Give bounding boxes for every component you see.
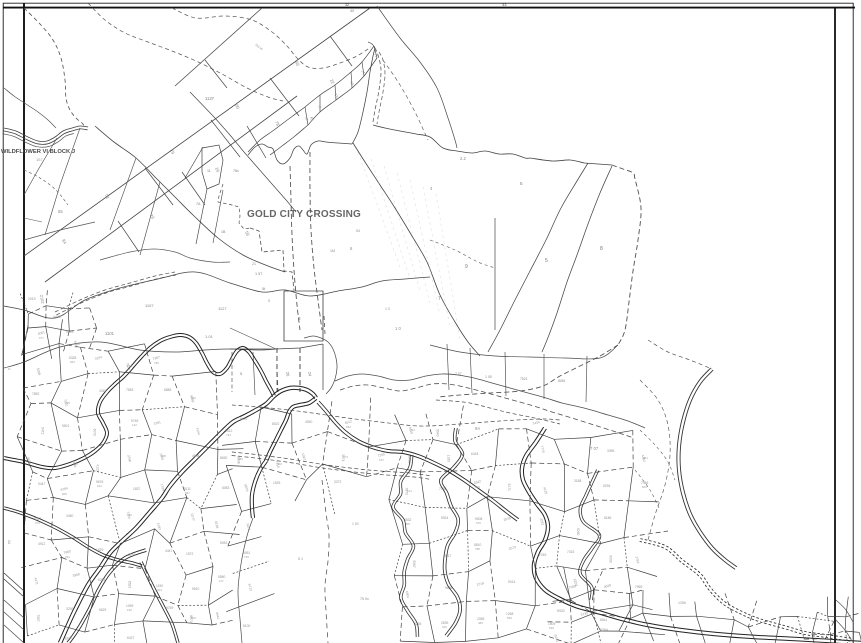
svg-text:21: 21 bbox=[252, 262, 256, 266]
svg-text:9447: 9447 bbox=[38, 482, 46, 486]
svg-text:2019: 2019 bbox=[28, 297, 36, 301]
svg-text:874: 874 bbox=[343, 455, 348, 459]
svg-text:1 05: 1 05 bbox=[485, 375, 492, 379]
svg-text:1107: 1107 bbox=[145, 303, 154, 308]
svg-text:7557: 7557 bbox=[36, 614, 40, 622]
svg-text:788: 788 bbox=[475, 547, 480, 551]
svg-text:54: 54 bbox=[356, 229, 360, 233]
svg-text:1 0: 1 0 bbox=[395, 326, 401, 331]
svg-text:9171: 9171 bbox=[507, 484, 511, 492]
svg-text:157: 157 bbox=[36, 157, 43, 162]
svg-text:8186: 8186 bbox=[604, 516, 612, 520]
svg-text:808: 808 bbox=[161, 454, 166, 458]
svg-text:652: 652 bbox=[346, 425, 351, 429]
svg-text:440: 440 bbox=[127, 513, 132, 517]
svg-text:7: 7 bbox=[438, 296, 441, 302]
svg-text:6293: 6293 bbox=[98, 578, 106, 582]
svg-text:1829: 1829 bbox=[96, 548, 104, 552]
svg-text:3355: 3355 bbox=[607, 449, 615, 453]
svg-text:5501: 5501 bbox=[62, 424, 70, 428]
svg-text:5 1: 5 1 bbox=[298, 557, 303, 561]
svg-text:5014: 5014 bbox=[508, 580, 516, 584]
svg-text:1M: 1M bbox=[330, 249, 335, 253]
svg-text:424: 424 bbox=[410, 428, 415, 432]
svg-text:612: 612 bbox=[97, 484, 102, 488]
svg-text:686: 686 bbox=[238, 457, 243, 461]
svg-text:1137: 1137 bbox=[205, 96, 215, 101]
svg-text:4508: 4508 bbox=[192, 454, 200, 458]
svg-text:3236: 3236 bbox=[66, 607, 74, 611]
svg-text:1256: 1256 bbox=[678, 601, 686, 605]
svg-text:796: 796 bbox=[154, 361, 159, 365]
svg-text:9769: 9769 bbox=[166, 606, 174, 610]
svg-text:8081: 8081 bbox=[558, 379, 566, 383]
svg-text:3450: 3450 bbox=[66, 514, 74, 518]
svg-text:6520: 6520 bbox=[127, 581, 131, 589]
svg-text:5364: 5364 bbox=[600, 628, 608, 632]
svg-text:2.2: 2.2 bbox=[460, 156, 466, 161]
svg-text:539: 539 bbox=[549, 626, 554, 630]
svg-text:7245: 7245 bbox=[539, 553, 547, 557]
svg-text:1572: 1572 bbox=[186, 552, 194, 556]
svg-text:900: 900 bbox=[191, 616, 196, 620]
svg-text:5764: 5764 bbox=[128, 553, 136, 557]
svg-text:970: 970 bbox=[476, 521, 481, 525]
svg-text:8100: 8100 bbox=[243, 624, 251, 628]
svg-text:5924: 5924 bbox=[441, 516, 449, 520]
svg-text:4310: 4310 bbox=[99, 389, 107, 393]
svg-text:5: 5 bbox=[268, 299, 270, 303]
svg-text:3272: 3272 bbox=[334, 480, 342, 484]
svg-text:4447: 4447 bbox=[165, 549, 173, 553]
svg-text:652: 652 bbox=[191, 396, 196, 400]
svg-text:8541: 8541 bbox=[600, 618, 608, 622]
svg-text:9099: 9099 bbox=[608, 555, 612, 563]
svg-text:360: 360 bbox=[277, 462, 282, 466]
svg-text:5932: 5932 bbox=[557, 609, 565, 613]
svg-text:8: 8 bbox=[600, 246, 603, 252]
svg-text:6418: 6418 bbox=[471, 452, 479, 456]
svg-text:9510: 9510 bbox=[192, 587, 200, 591]
svg-text:6427: 6427 bbox=[127, 636, 135, 640]
svg-text:602: 602 bbox=[642, 485, 647, 489]
svg-text:916: 916 bbox=[442, 625, 447, 629]
svg-text:7315: 7315 bbox=[567, 550, 575, 554]
svg-text:1: 1 bbox=[7, 368, 11, 370]
svg-text:4408: 4408 bbox=[53, 315, 61, 319]
svg-text:867: 867 bbox=[185, 491, 190, 495]
svg-text:905: 905 bbox=[475, 485, 480, 489]
svg-text:9940: 9940 bbox=[435, 429, 439, 437]
svg-text:759: 759 bbox=[65, 401, 70, 405]
svg-text:8083: 8083 bbox=[222, 486, 230, 490]
svg-text:1.01: 1.01 bbox=[205, 334, 214, 339]
svg-text:4912: 4912 bbox=[38, 542, 46, 546]
svg-text:101: 101 bbox=[407, 489, 412, 493]
svg-text:461: 461 bbox=[643, 456, 648, 460]
svg-text:GOLD CITY CROSSING: GOLD CITY CROSSING bbox=[247, 209, 361, 220]
svg-text:7521: 7521 bbox=[520, 377, 528, 381]
svg-text:5294: 5294 bbox=[603, 484, 611, 488]
svg-text:4917: 4917 bbox=[444, 554, 452, 558]
svg-text:1 50: 1 50 bbox=[352, 522, 359, 526]
svg-text:78x: 78x bbox=[233, 169, 239, 173]
svg-text:7852: 7852 bbox=[32, 392, 40, 396]
svg-text:5052: 5052 bbox=[220, 541, 228, 545]
svg-text:75 0x: 75 0x bbox=[360, 597, 369, 601]
svg-text:792: 792 bbox=[73, 462, 78, 466]
svg-text:32: 32 bbox=[345, 3, 349, 7]
svg-text:7583: 7583 bbox=[126, 388, 134, 392]
svg-text:5: 5 bbox=[545, 258, 548, 264]
svg-text:9472: 9472 bbox=[41, 427, 45, 435]
svg-text:386: 386 bbox=[75, 342, 80, 346]
svg-text:192: 192 bbox=[127, 608, 132, 612]
svg-text:7 07: 7 07 bbox=[590, 446, 599, 451]
svg-text:6885: 6885 bbox=[164, 388, 172, 392]
svg-text:3188: 3188 bbox=[574, 479, 582, 483]
svg-text:569: 569 bbox=[507, 616, 512, 620]
svg-text:9470: 9470 bbox=[240, 417, 248, 421]
svg-text:7969: 7969 bbox=[635, 585, 643, 589]
svg-text:739: 739 bbox=[244, 555, 249, 559]
svg-text:6072: 6072 bbox=[92, 429, 96, 437]
svg-text:563: 563 bbox=[70, 360, 75, 364]
svg-text:167: 167 bbox=[379, 458, 384, 462]
svg-text:55: 55 bbox=[58, 209, 63, 214]
svg-text:33: 33 bbox=[502, 2, 507, 7]
svg-text:1330: 1330 bbox=[446, 455, 450, 463]
svg-text:122: 122 bbox=[132, 423, 137, 427]
svg-text:1525: 1525 bbox=[273, 481, 281, 485]
svg-text:677: 677 bbox=[39, 336, 44, 340]
svg-text:1837: 1837 bbox=[133, 487, 141, 491]
svg-text:291: 291 bbox=[65, 555, 70, 559]
svg-text:9: 9 bbox=[465, 264, 468, 270]
svg-text:1101: 1101 bbox=[105, 331, 115, 336]
svg-text:6629: 6629 bbox=[99, 608, 107, 612]
svg-text:40: 40 bbox=[350, 9, 354, 13]
svg-text:1127: 1127 bbox=[218, 306, 227, 311]
svg-text:138: 138 bbox=[127, 364, 132, 368]
svg-text:14: 14 bbox=[7, 540, 11, 544]
svg-text:9260: 9260 bbox=[576, 528, 580, 536]
svg-text:1B: 1B bbox=[221, 230, 226, 234]
svg-text:4120: 4120 bbox=[96, 464, 100, 472]
svg-text:9A: 9A bbox=[475, 426, 480, 431]
svg-text:8630: 8630 bbox=[220, 456, 228, 460]
svg-text:117: 117 bbox=[219, 579, 224, 583]
svg-text:1 57: 1 57 bbox=[255, 272, 262, 276]
svg-text:5067: 5067 bbox=[412, 560, 416, 568]
svg-text:WILDFLOWER VI BLOCK J: WILDFLOWER VI BLOCK J bbox=[1, 149, 75, 155]
svg-text:605: 605 bbox=[62, 492, 67, 496]
svg-text:11: 11 bbox=[207, 169, 211, 173]
svg-text:8022: 8022 bbox=[272, 422, 280, 426]
svg-text:4940: 4940 bbox=[305, 420, 313, 424]
svg-text:7A: 7A bbox=[196, 202, 201, 206]
svg-text:374: 374 bbox=[35, 521, 40, 525]
svg-text:744: 744 bbox=[226, 433, 231, 437]
svg-text:483: 483 bbox=[478, 621, 483, 625]
svg-text:1 0: 1 0 bbox=[385, 307, 390, 311]
svg-text:313: 313 bbox=[157, 588, 162, 592]
